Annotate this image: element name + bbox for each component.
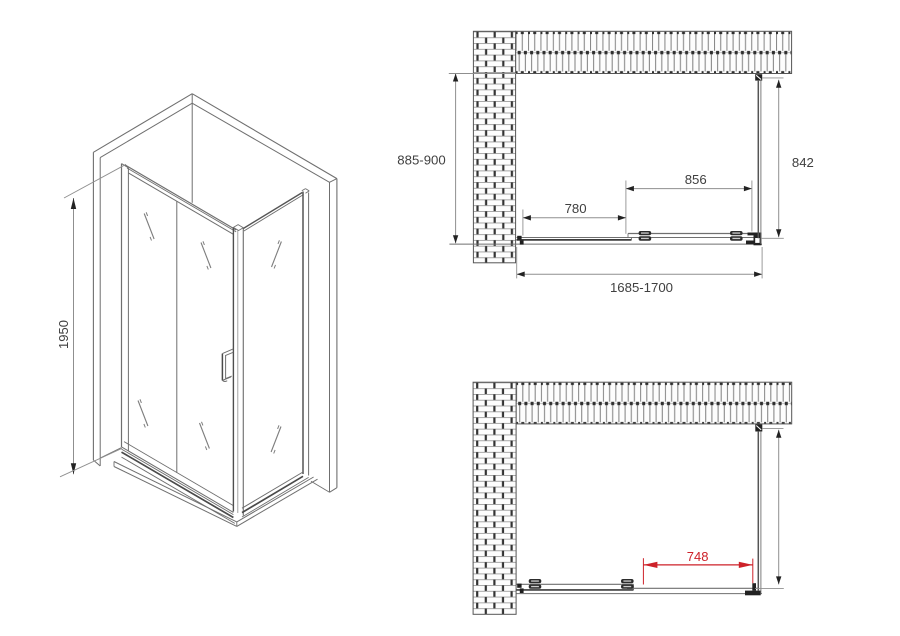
svg-text:856: 856 [685,172,707,187]
svg-text:1950: 1950 [56,320,71,349]
svg-text:842: 842 [792,155,814,170]
svg-text:780: 780 [565,201,587,216]
svg-text:748: 748 [687,549,709,564]
svg-text:885-900: 885-900 [397,152,445,167]
svg-text:1685-1700: 1685-1700 [610,280,673,295]
